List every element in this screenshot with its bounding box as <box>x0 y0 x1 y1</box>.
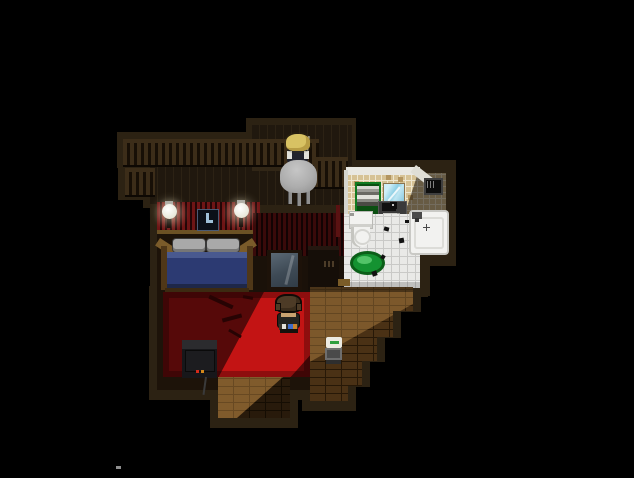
lamp-bracket <box>167 219 171 228</box>
wardrobe[interactable] <box>308 246 339 290</box>
tile-dark <box>398 177 403 182</box>
debris-speck <box>116 466 121 469</box>
table-top <box>280 160 317 193</box>
balcony-railing-lower <box>125 168 155 197</box>
npc-shirt-left <box>287 151 292 159</box>
doorway-threshold <box>338 279 350 286</box>
standing-mirror[interactable] <box>267 250 302 290</box>
wall-clock <box>197 209 219 231</box>
round-table[interactable] <box>280 160 317 195</box>
tv-led-red <box>196 370 199 373</box>
balcony-railing-right <box>314 157 348 189</box>
player-legs <box>280 329 298 333</box>
lamp-bracket <box>239 218 243 227</box>
wardrobe-vent <box>328 261 330 267</box>
npc-shirt-right <box>304 151 309 159</box>
tub-spout <box>415 218 419 222</box>
lamp-ball <box>234 203 249 218</box>
toilet[interactable] <box>348 211 372 249</box>
table-leg <box>306 191 310 204</box>
wall-lamp-right <box>232 200 250 228</box>
bathtub[interactable] <box>409 210 449 255</box>
player-hair-tuft <box>297 304 301 310</box>
wardrobe-vent <box>324 261 326 267</box>
wall-vent <box>424 178 443 195</box>
vent-slat <box>427 181 428 188</box>
clock-hand-horizontal <box>206 220 213 223</box>
wall-red-sliver <box>336 205 340 237</box>
tub-sparkle <box>423 227 430 228</box>
wardrobe-vent <box>332 261 334 267</box>
wardrobe-top <box>308 246 339 250</box>
radio-base <box>326 360 341 364</box>
player-character[interactable] <box>276 295 301 334</box>
vent-slat <box>433 181 434 188</box>
mirror-streak <box>387 186 400 201</box>
bottom-brick-floor <box>218 377 290 418</box>
tv-front <box>185 350 215 372</box>
radio-display <box>330 341 339 344</box>
tv-top <box>182 340 217 349</box>
small-radio[interactable] <box>324 337 343 364</box>
dirt-stain <box>405 220 409 223</box>
brick-top-beam <box>310 287 413 292</box>
table-leg <box>288 191 292 204</box>
green-bath-mat <box>350 251 385 275</box>
vent-slat <box>430 181 431 188</box>
toilet-seat <box>354 229 371 245</box>
lamp-ball <box>162 204 177 219</box>
faucet-knob <box>392 204 394 206</box>
double-bed[interactable] <box>158 230 254 294</box>
table-leg <box>297 193 301 206</box>
tv-set[interactable] <box>182 340 217 378</box>
npc-hair <box>286 134 310 151</box>
pillow-right <box>207 239 239 252</box>
player-hair-tuft <box>276 304 280 310</box>
tv-led-orange <box>201 370 204 373</box>
bed-post-right <box>247 246 253 290</box>
game-viewport[interactable] <box>0 0 634 478</box>
toilet-handle <box>350 213 354 216</box>
pillow-left <box>173 239 205 252</box>
blanket-fold <box>167 252 247 258</box>
radio-grille <box>327 350 340 358</box>
mat-center <box>357 256 372 264</box>
dirt-stain <box>399 238 405 244</box>
tile-dark <box>386 175 391 180</box>
wall-lamp-left <box>160 201 178 229</box>
bathroom-wall-top-edge <box>346 167 420 175</box>
border-segment <box>420 252 430 296</box>
